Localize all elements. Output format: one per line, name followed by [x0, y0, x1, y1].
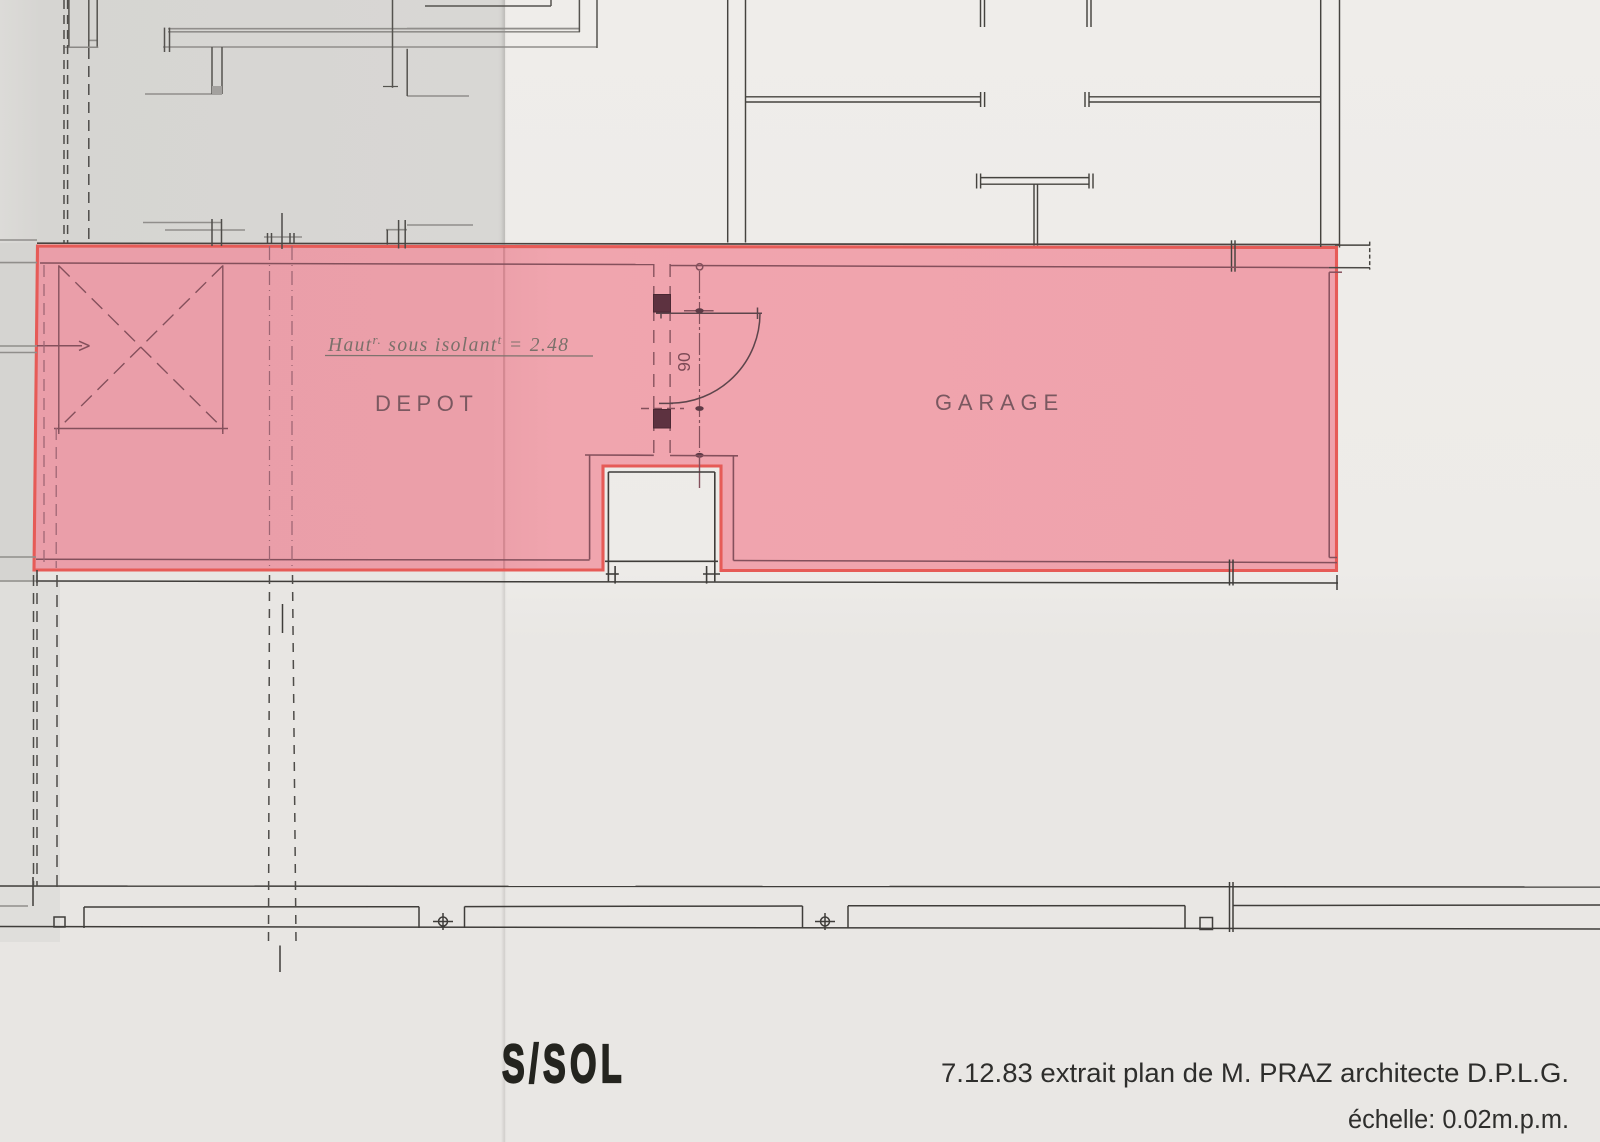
svg-text:90: 90	[674, 352, 694, 372]
svg-text:S/SOL: S/SOL	[502, 1033, 626, 1094]
svg-text:DEPOT: DEPOT	[375, 391, 478, 416]
svg-text:Hautr. sous isolantt = 2.48: Hautr. sous isolantt = 2.48	[327, 332, 568, 356]
svg-text:7.12.83 extrait plan de M. PRA: 7.12.83 extrait plan de M. PRAZ architec…	[941, 1058, 1569, 1088]
svg-text:échelle: 0.02m.p.m.: échelle: 0.02m.p.m.	[1348, 1106, 1569, 1134]
svg-text:GARAGE: GARAGE	[935, 390, 1064, 415]
